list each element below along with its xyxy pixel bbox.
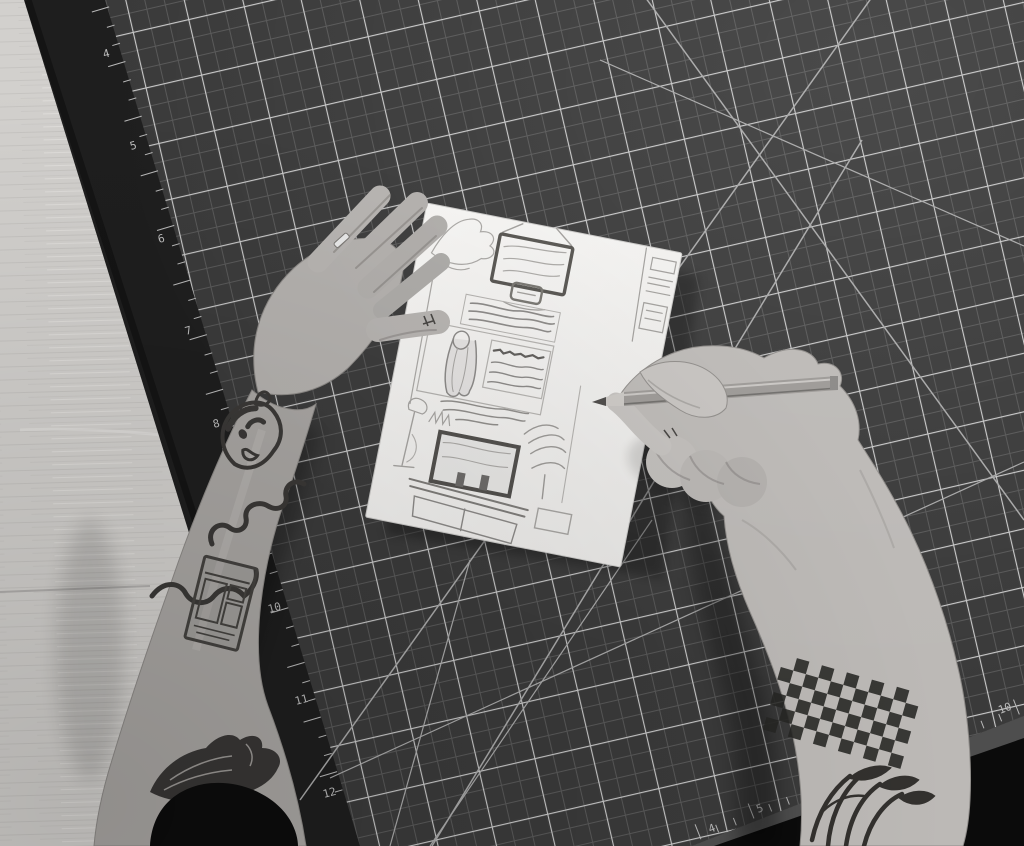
photo-stage: 4 5 6 7 8 9 10 11 12 4 5 6 7 8 9 10: [0, 0, 1024, 846]
vignette-overlay: [0, 0, 1024, 846]
scene-photo: 4 5 6 7 8 9 10 11 12 4 5 6 7 8 9 10: [0, 0, 1024, 846]
